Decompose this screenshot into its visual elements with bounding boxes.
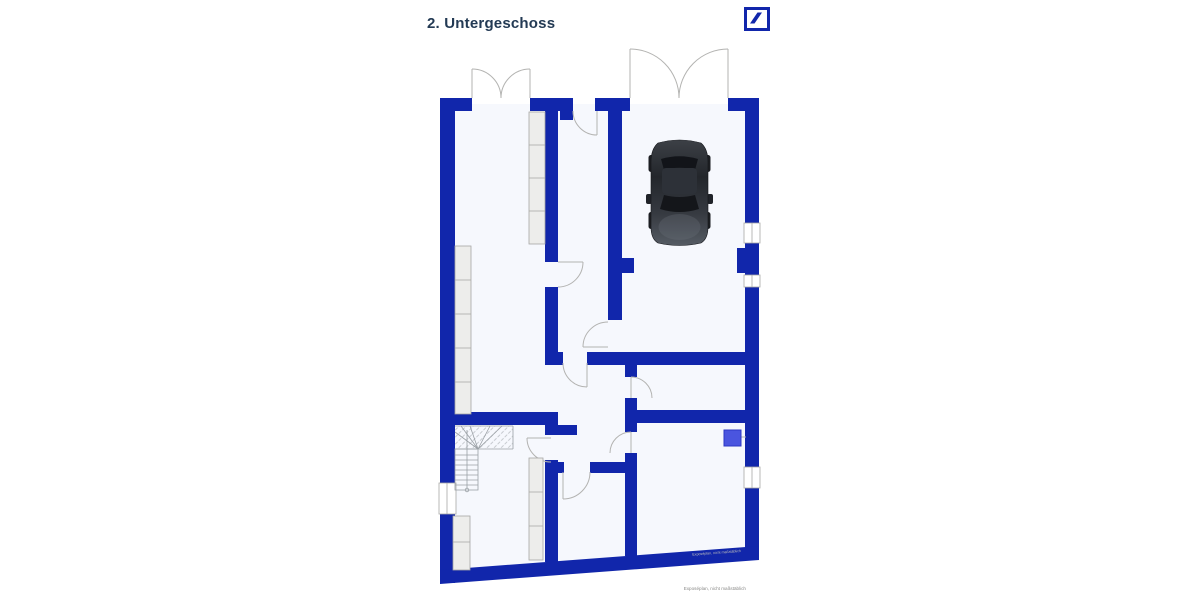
car-roof [662,168,697,194]
car [646,140,713,246]
shelf-upper-middle [529,112,545,244]
shelf-lower-left [453,516,470,570]
window-right-2 [744,275,760,287]
entry-double-door-left [472,69,530,98]
car-hood-highlight [659,214,701,240]
floor-plan: Exposéplan, nicht maßstäblich Exposéplan… [430,38,775,600]
window-right-1 [744,223,760,243]
car-windshield [660,195,699,212]
page-title: 2. Untergeschoss [427,15,555,32]
garage-double-door [630,49,728,98]
deutsche-bank-logo [744,7,770,31]
shelf-left [455,246,471,414]
shelf-lower-middle [529,458,543,560]
window-right-3 [744,467,760,488]
window-left-1 [439,483,456,514]
scale-disclaimer: Exposéplan, nicht maßstäblich [684,586,747,591]
